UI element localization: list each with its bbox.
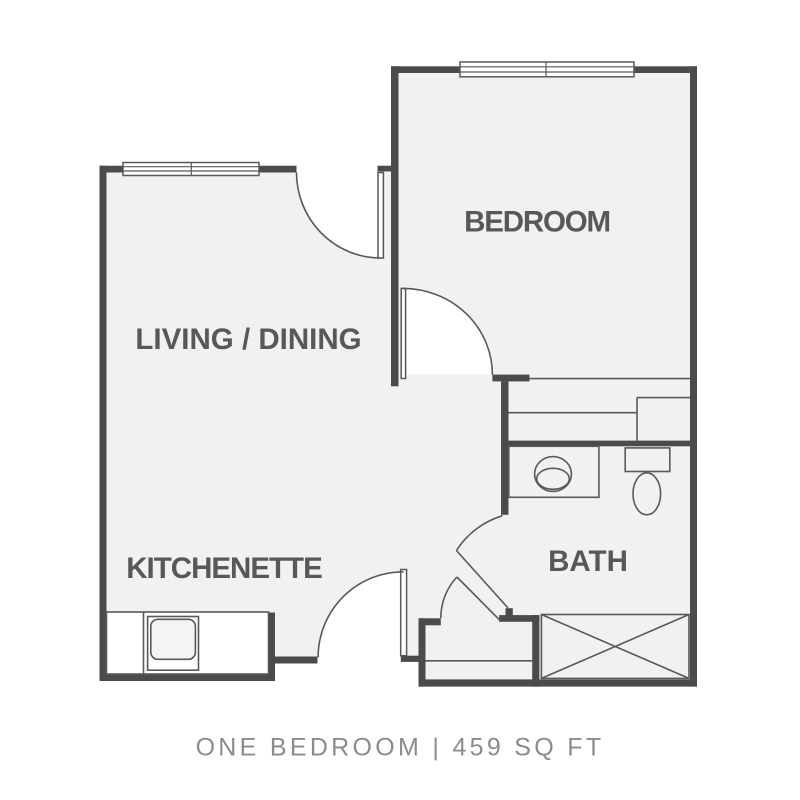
svg-text:BATH: BATH xyxy=(548,545,628,578)
svg-text:KITCHENETTE: KITCHENETTE xyxy=(126,552,322,585)
svg-text:ONE BEDROOM | 459 SQ FT: ONE BEDROOM | 459 SQ FT xyxy=(196,734,605,762)
svg-text:BEDROOM: BEDROOM xyxy=(464,206,610,239)
svg-text:LIVING / DINING: LIVING / DINING xyxy=(135,323,361,356)
